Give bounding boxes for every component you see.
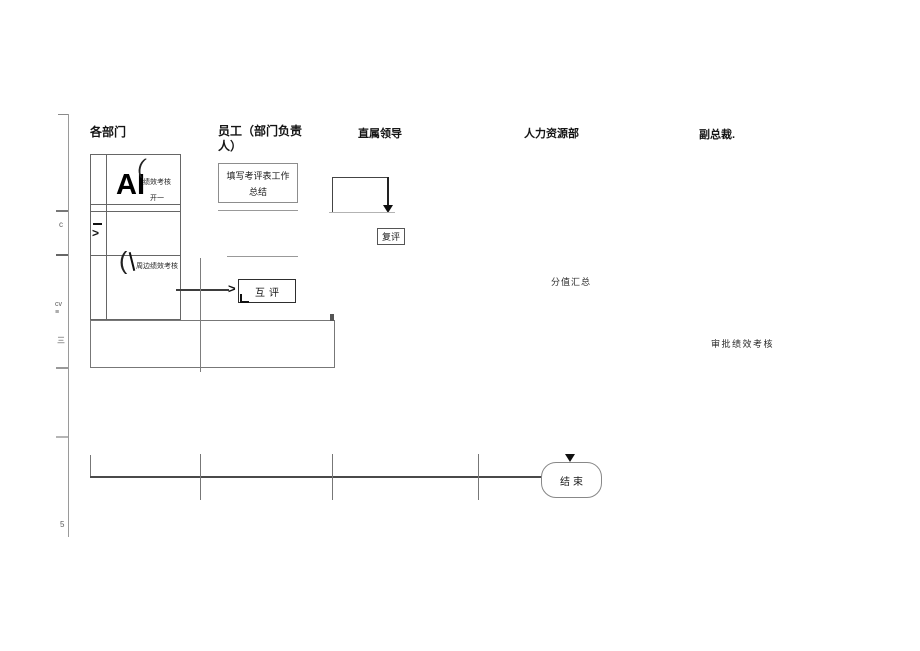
lane-header-hr: 人力资源部 [524,127,579,142]
underline-segment [218,210,298,211]
approve-review-label: 审批绩效考核 [711,339,774,350]
ruler-tick [56,254,68,256]
ruler-line [68,114,69,537]
leader-connector-right [387,177,389,207]
small-corner-mark [330,314,334,321]
corner-bracket-mark [240,294,249,303]
re-review-box: 复评 [377,228,405,245]
lane-header-employee: 员工（部门负责人） [218,124,310,154]
dept-matrix-inner-divider [106,154,107,320]
ruler-mark: c [59,221,63,229]
dash-mark [93,223,102,225]
ruler-mark: cv [55,301,62,309]
flow-tick [90,455,91,476]
ruler-mark: 三 [57,337,65,345]
pen-stroke-icon: ( [119,249,127,274]
flow-tick [332,454,333,500]
dept-matrix-row-line [90,204,181,205]
dept-matrix-row-line [90,255,181,256]
kai-fragment-label: 开一 [150,195,164,203]
ruler-top-tick [58,114,68,115]
mutual-review-label: 互评 [255,284,283,299]
lane-header-departments: 各部门 [90,125,126,140]
peripheral-review-label: 周边绩效考核 [136,263,178,271]
underline-segment [227,256,298,257]
flow-tick [200,454,201,500]
ruler-mark: ≡ [55,309,59,317]
end-terminator: 结束 [541,462,602,498]
dept-matrix-row-line [90,211,181,212]
lane-header-direct-leader: 直属领导 [358,127,402,142]
leader-connector-top [332,177,388,178]
perf-review-label: 绩效考核 [143,179,171,187]
ruler-mark: 5 [60,521,64,529]
end-label: 结束 [560,473,586,488]
arrow-down-icon [565,454,575,462]
ruler-tick [56,436,68,438]
flow-tick [478,454,479,500]
ruler-tick [56,367,68,369]
fill-form-box: 填写考评表工作总结 [218,163,298,203]
score-summary-label: 分值汇总 [551,277,591,288]
chevron-right-icon: > [92,227,99,240]
summary-rect [90,320,335,368]
arrow-to-mutual-line [176,289,229,291]
ruler-tick [56,210,68,212]
re-review-label: 复评 [382,230,400,243]
leader-connector-bottom [329,212,395,213]
leader-connector-left [332,177,333,213]
bottom-flow-line [90,476,542,478]
lane-header-vice-president: 副总裁. [699,128,735,143]
arrow-right-icon: > [228,282,236,296]
document-page: c cv ≡ 三 5 各部门 员工（部门负责人） 直属领导 人力资源部 副总裁.… [0,0,920,651]
column-divider-line [200,258,201,372]
